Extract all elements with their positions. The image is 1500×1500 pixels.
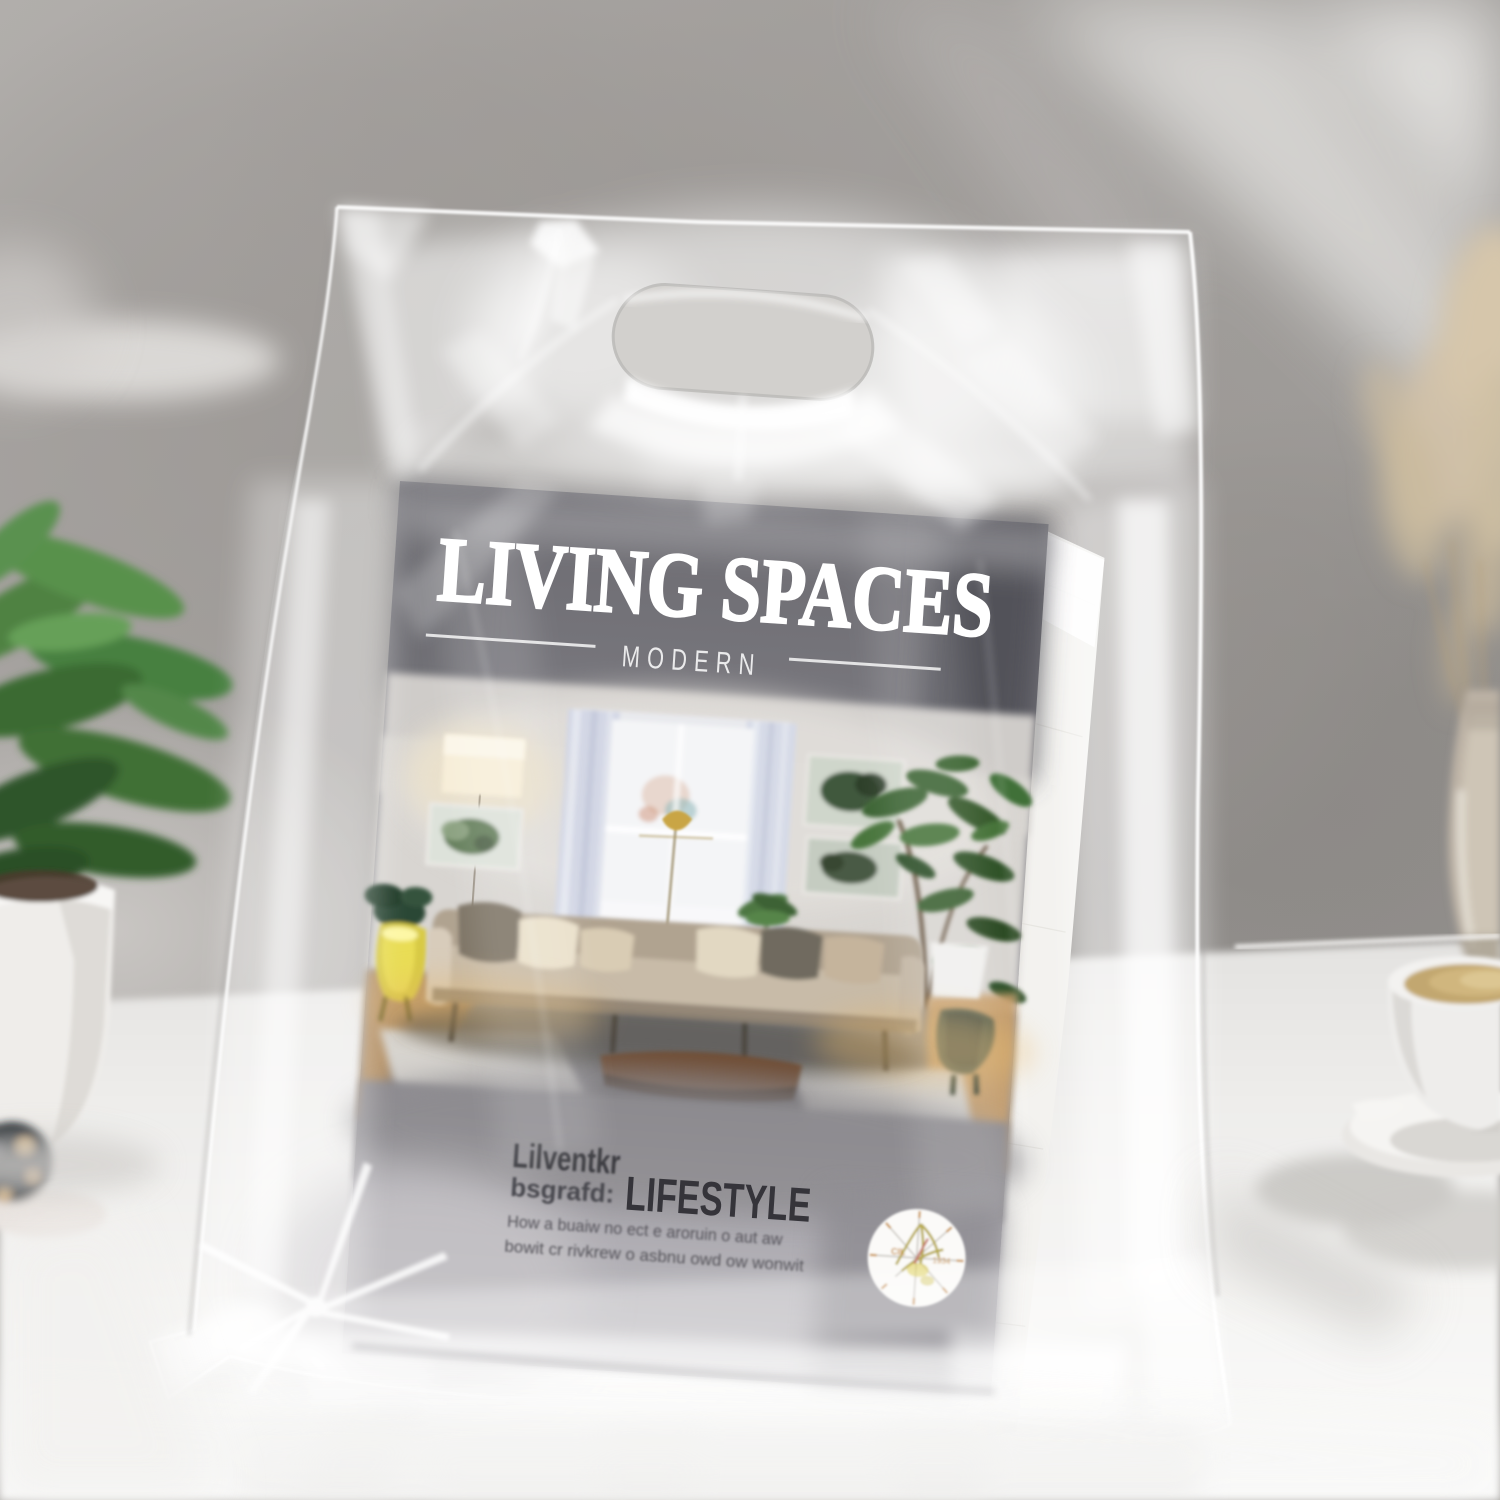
svg-text:CIL: CIL [891, 1246, 907, 1257]
svg-text:1934: 1934 [932, 1256, 951, 1266]
